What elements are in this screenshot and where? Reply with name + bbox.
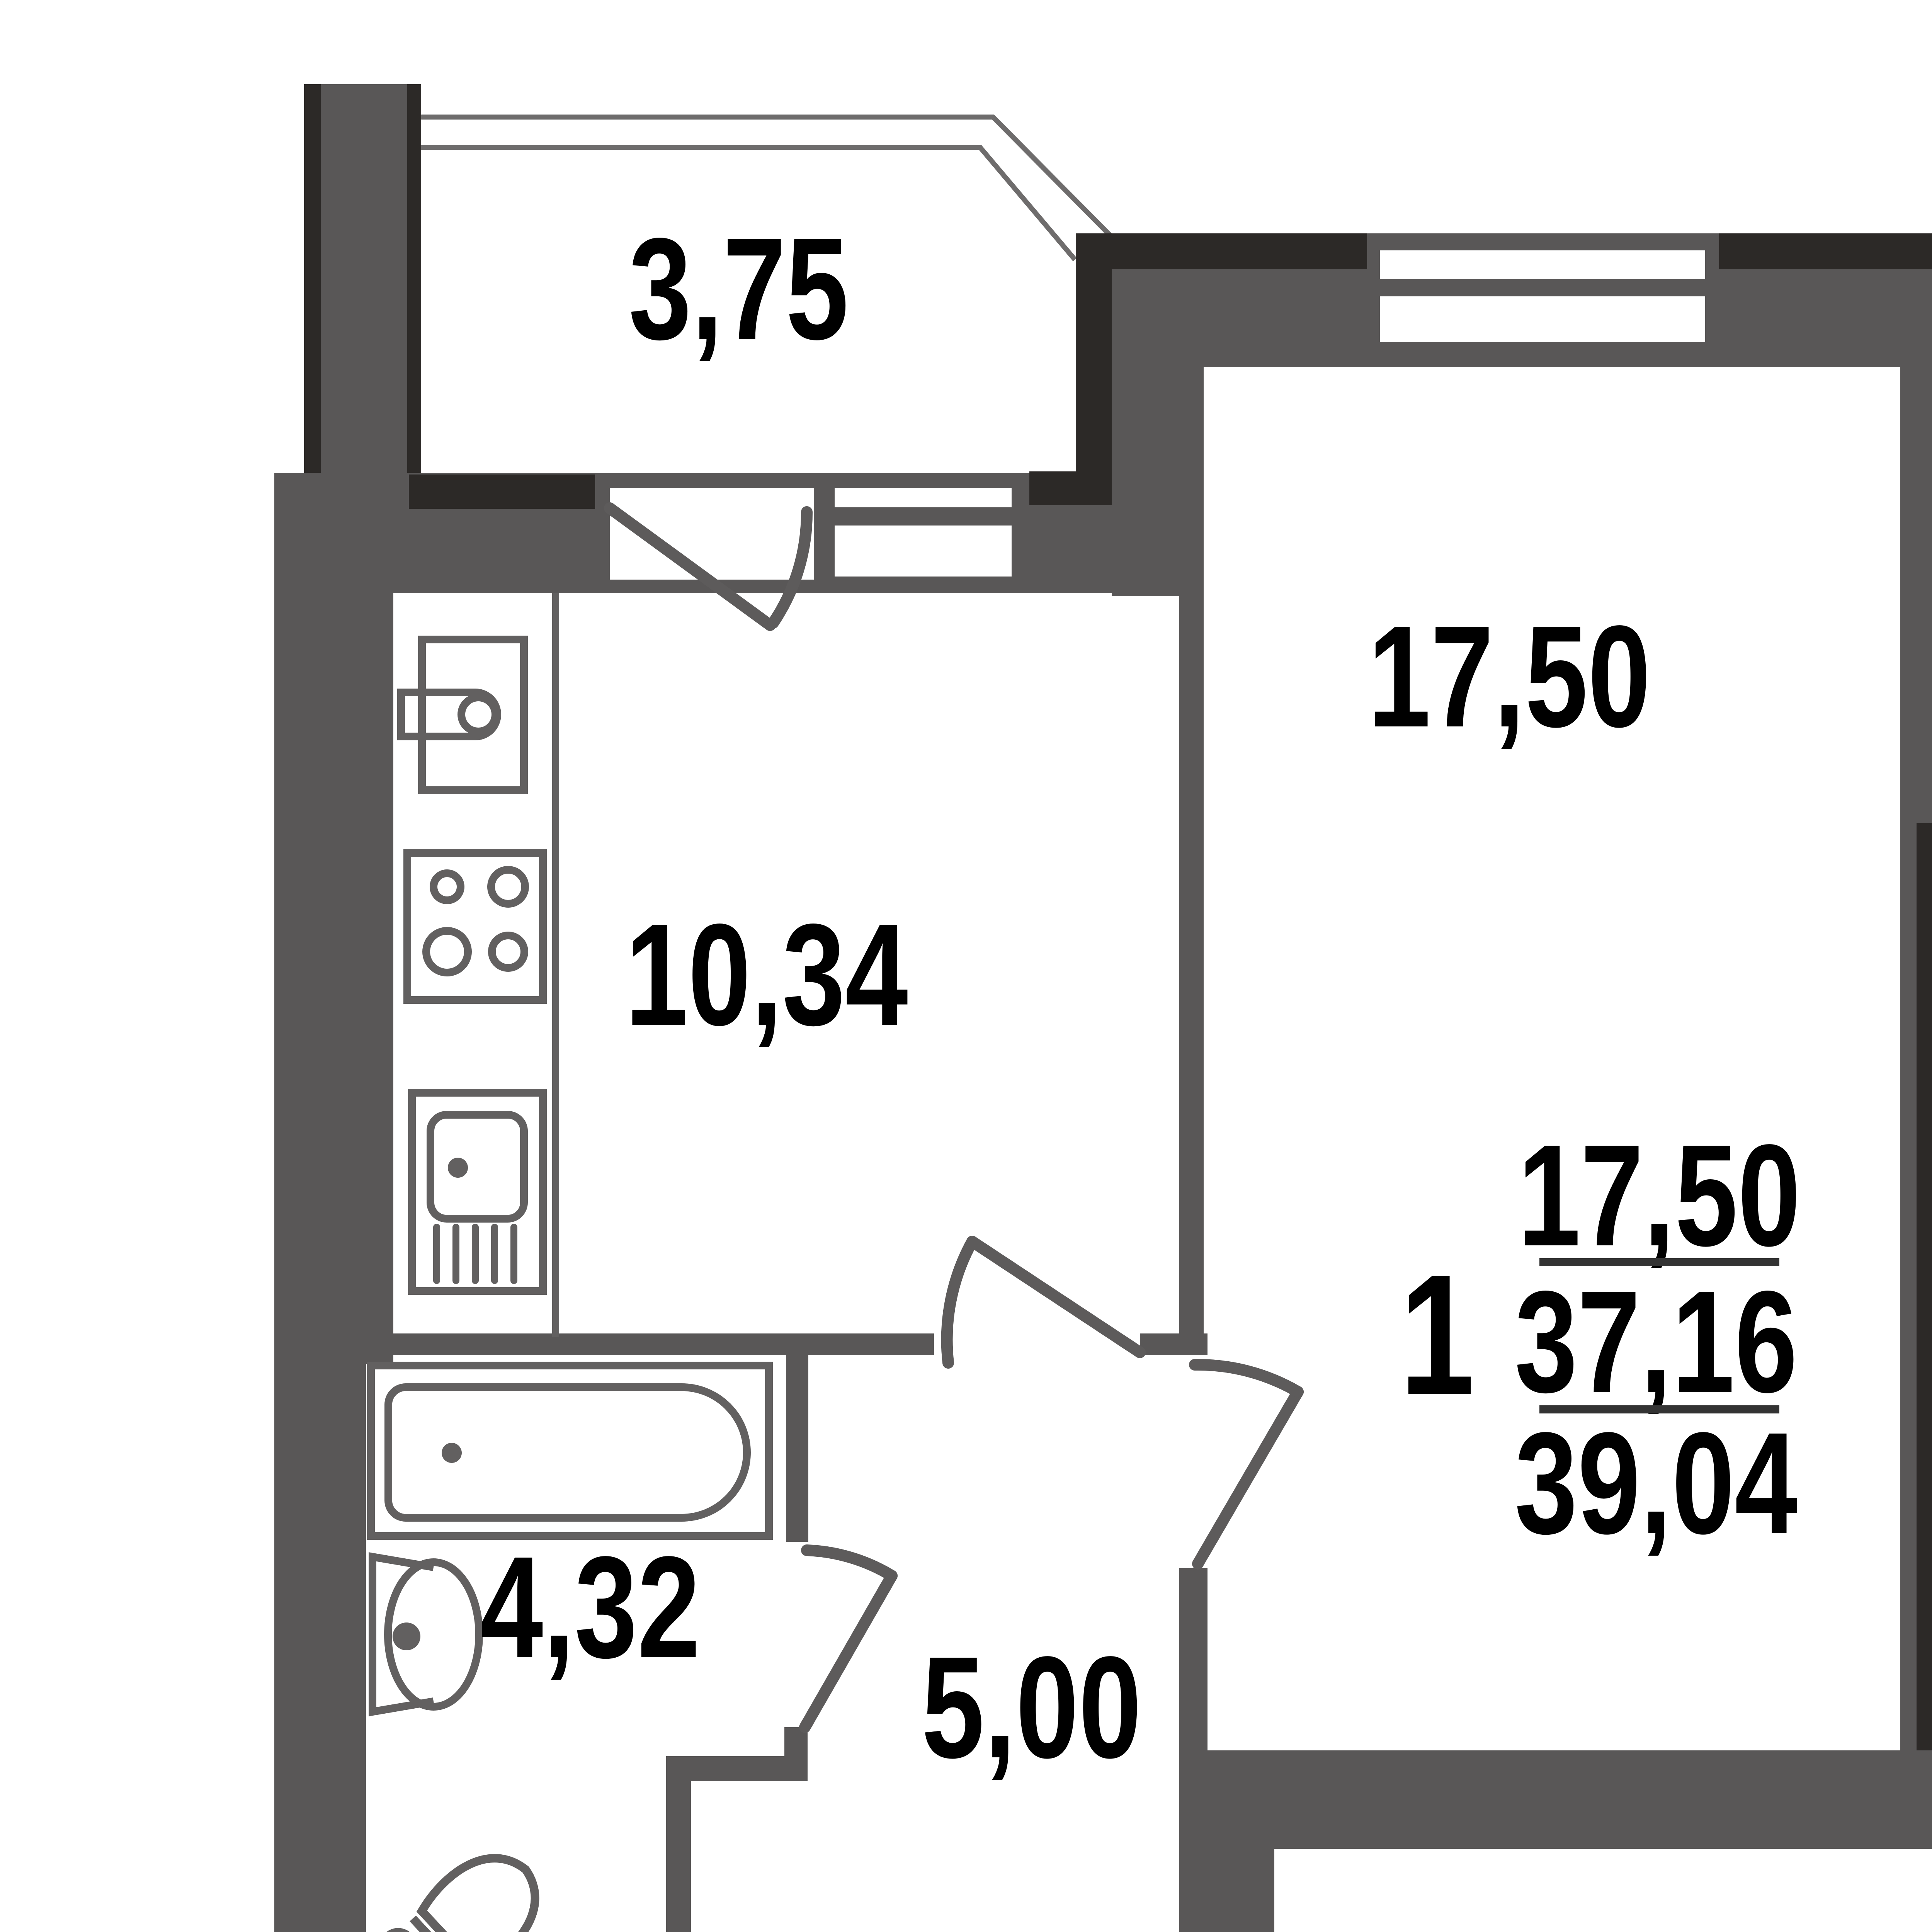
svg-text:39,04: 39,04 bbox=[1515, 1403, 1798, 1564]
svg-text:17,50: 17,50 bbox=[1518, 1115, 1801, 1276]
svg-text:3,75: 3,75 bbox=[629, 208, 849, 370]
svg-text:1: 1 bbox=[1400, 1238, 1475, 1430]
svg-text:5,00: 5,00 bbox=[922, 1627, 1141, 1788]
svg-text:10,34: 10,34 bbox=[625, 894, 909, 1056]
svg-text:37,16: 37,16 bbox=[1515, 1261, 1798, 1423]
svg-text:17,50: 17,50 bbox=[1368, 596, 1651, 757]
svg-text:4,32: 4,32 bbox=[480, 1527, 700, 1688]
